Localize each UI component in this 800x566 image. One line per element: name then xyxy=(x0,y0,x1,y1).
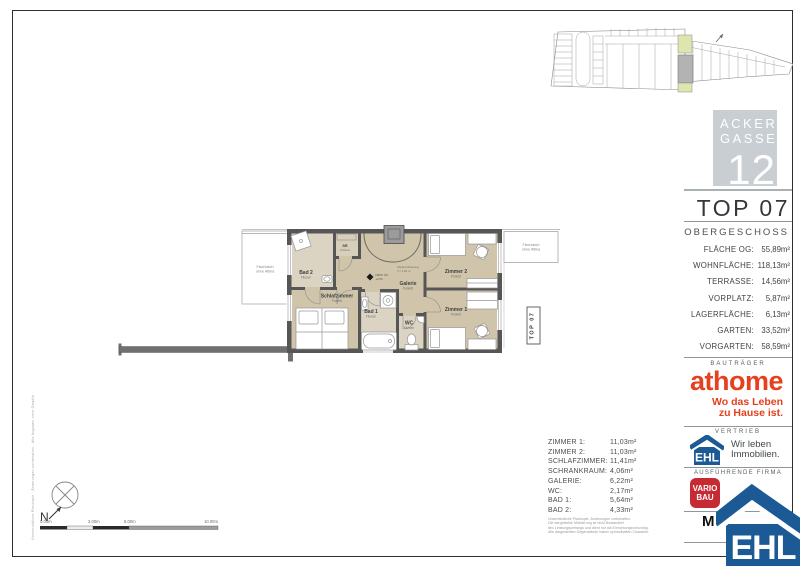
svg-text:3.00m: 3.00m xyxy=(88,519,100,524)
plan-disclaimer: Unverbindliche Plankopie. Änderungen vor… xyxy=(548,517,649,535)
unit-title: TOP 07 xyxy=(684,195,790,222)
plan-document-page: ACKER GASSE 12 TOP 07 OBERGESCHOSS FLÄCH… xyxy=(0,0,800,566)
svg-text:Fliesen: Fliesen xyxy=(404,326,415,330)
svg-text:5.00m: 5.00m xyxy=(124,519,136,524)
ehl-logo-lockup: EHL Wir leben Immobilien. xyxy=(690,435,780,465)
project-number: 12 xyxy=(727,146,776,186)
svg-text:+2,53: +2,53 xyxy=(376,277,384,281)
svg-text:EHL: EHL xyxy=(695,451,719,465)
athome-tagline: Wo das Leben zu Hause ist. xyxy=(684,397,783,419)
table-row: SCHLAFZIMMER:11,41m² xyxy=(548,457,637,467)
table-row: BAD 2:4,33m² xyxy=(548,506,637,516)
svg-text:Parkett: Parkett xyxy=(403,287,413,291)
svg-text:TOP 07: TOP 07 xyxy=(530,312,536,340)
svg-text:Fliesen: Fliesen xyxy=(366,315,377,319)
sidebar-divider xyxy=(684,467,792,468)
site-plan xyxy=(545,20,793,98)
project-name-line1: ACKER xyxy=(720,116,777,131)
unit-tag: TOP 07 xyxy=(527,307,540,344)
table-row: ZIMMER 2:11,03m² xyxy=(548,448,637,458)
table-row: BAD 1:5,64m² xyxy=(548,496,637,506)
svg-text:Parkett: Parkett xyxy=(451,313,461,317)
svg-text:Fliesen: Fliesen xyxy=(301,276,312,280)
margin-fine-print: Unverbindliche Plankopie · Änderungen vo… xyxy=(31,335,35,540)
area-summary-list: FLÄCHE OG:55,89m² WOHNFLÄCHE:118,13m² TE… xyxy=(684,241,790,355)
floor-plan: Flachdach ohne Attika xyxy=(112,222,562,372)
ehl-watermark-logo: EHL xyxy=(716,482,800,566)
partner-logo-m: M xyxy=(702,513,715,530)
site-plan-north-arrow xyxy=(716,34,723,42)
table-row: WC:2,17m² xyxy=(548,487,637,497)
table-row: ZIMMER 1:11,03m² xyxy=(548,438,637,448)
area-row: GARTEN:33,52m² xyxy=(684,322,790,338)
scale-bar: 0.00m 3.00m 5.00m 10.00m xyxy=(40,517,222,533)
svg-text:h = 1,00 m: h = 1,00 m xyxy=(397,269,411,273)
sidebar-divider xyxy=(684,221,792,222)
svg-text:0.00m: 0.00m xyxy=(40,519,52,524)
section-heading-ausfuehrende-firma: AUSFÜHRENDE FIRMA xyxy=(684,470,792,476)
svg-text:ohne Attika: ohne Attika xyxy=(256,270,275,274)
garden-wall xyxy=(119,344,294,362)
project-logo-ackergasse: ACKER GASSE 12 xyxy=(713,110,777,186)
project-name-line2: GASSE xyxy=(720,131,777,146)
area-row: VORGARTEN:58,59m² xyxy=(684,339,790,355)
area-row: FLÄCHE OG:55,89m² xyxy=(684,241,790,257)
ehl-logo-icon: EHL xyxy=(690,435,724,465)
ehl-slogan: Wir leben Immobilien. xyxy=(731,440,780,461)
area-row: VORPLATZ:5,87m² xyxy=(684,290,790,306)
sidebar-divider xyxy=(684,357,792,358)
sidebar-divider xyxy=(684,189,792,191)
area-row: TERRASSE:14,56m² xyxy=(684,274,790,290)
floor-title: OBERGESCHOSS xyxy=(684,227,789,238)
area-row: WOHNFLÄCHE:118,13m² xyxy=(684,257,790,273)
svg-text:ohne Attika: ohne Attika xyxy=(522,248,541,252)
room-area-table: ZIMMER 1:11,03m² ZIMMER 2:11,03m² SCHLAF… xyxy=(548,438,637,516)
area-row: LAGERFLÄCHE:6,13m² xyxy=(684,306,790,322)
table-row: GALERIE:6,22m² xyxy=(548,477,637,487)
svg-text:EHL: EHL xyxy=(731,529,796,566)
sidebar-divider xyxy=(684,426,792,427)
flat-roof-left-label: Flachdach xyxy=(256,265,273,269)
flat-roof-left: Flachdach ohne Attika xyxy=(242,229,288,304)
svg-text:10.00m: 10.00m xyxy=(204,519,218,524)
site-plan-highlighted-unit xyxy=(678,35,693,92)
table-row: SCHRANKRAUM:4,06m² xyxy=(548,467,637,477)
athome-logo: athome xyxy=(684,366,783,397)
site-plan-outline xyxy=(551,29,793,90)
svg-text:Parkett: Parkett xyxy=(340,248,350,252)
svg-text:Parkett: Parkett xyxy=(332,299,342,303)
flat-roof-right-label: Flachdach xyxy=(522,243,539,247)
svg-text:Parkett: Parkett xyxy=(451,275,461,279)
